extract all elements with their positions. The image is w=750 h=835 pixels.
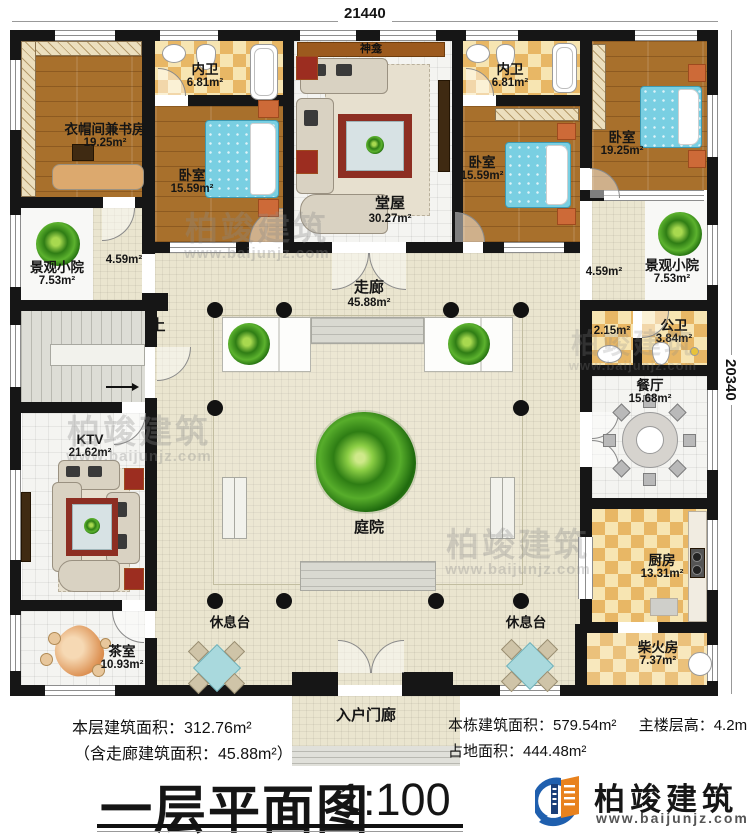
stat-floor-area: 本层建筑面积：312.76m² <box>72 714 252 738</box>
walkway-bridge-south <box>300 561 436 591</box>
window <box>707 390 718 470</box>
label-rest-left: 休息台 <box>190 615 270 630</box>
dimension-right: 20340 <box>722 355 739 405</box>
column <box>207 400 223 416</box>
room-name: 内卫 <box>470 62 550 77</box>
room-name: 卧室 <box>582 130 662 145</box>
label-firewood: 柴火房 7.37m² <box>618 640 698 668</box>
walkway-west <box>222 477 247 539</box>
stat-floor-height: 主楼层高：4.2m <box>639 717 747 734</box>
table-plant <box>366 136 384 154</box>
room-area: 6.81m² <box>165 77 245 90</box>
room-name: 卧室 <box>442 155 522 170</box>
label-bedroom-right: 卧室 19.25m² <box>582 130 662 158</box>
window <box>10 470 21 560</box>
column <box>513 593 529 609</box>
label-yard-right: 景观小院 7.53m² <box>632 258 712 286</box>
wall <box>580 498 718 509</box>
room-name: 卧室 <box>152 168 232 183</box>
room-area: 21.62m² <box>45 447 135 460</box>
wall <box>283 41 294 253</box>
label-wash: 2.15m² <box>584 325 640 338</box>
wall <box>587 622 618 633</box>
stat-corridor-note: （含走廊建筑面积：45.88m²） <box>74 740 293 764</box>
table-plant <box>84 518 100 534</box>
wardrobe <box>21 41 142 56</box>
wall <box>580 376 592 412</box>
bed-pillow <box>678 89 699 145</box>
room-name: 庭院 <box>326 520 412 537</box>
column <box>276 593 292 609</box>
stair-arrow-head <box>132 383 139 391</box>
label-bedroom-mid: 卧室 15.59m² <box>442 155 522 183</box>
window <box>160 30 218 41</box>
room-area: 45.88m² <box>326 297 412 310</box>
label-yard-left: 景观小院 7.53m² <box>17 260 97 288</box>
bed-pillow <box>546 145 568 205</box>
wall <box>145 600 157 611</box>
corner-cabinet <box>296 150 318 174</box>
column <box>513 302 529 318</box>
wall <box>145 407 157 600</box>
sink <box>597 345 622 363</box>
room-area: 15.59m² <box>152 183 232 196</box>
sofa-pillow <box>336 64 352 76</box>
nightstand <box>258 199 279 217</box>
bed-pillow <box>250 123 276 195</box>
column <box>428 593 444 609</box>
wall <box>10 197 103 208</box>
room-name: 餐厅 <box>610 378 690 393</box>
window <box>10 60 21 130</box>
wall <box>575 624 587 696</box>
window <box>707 520 718 590</box>
room-area: 2.15m² <box>584 325 640 338</box>
window <box>55 30 115 41</box>
sofa-chaise <box>58 560 120 592</box>
room-name: 厨房 <box>622 553 702 568</box>
corner-cabinet <box>296 56 318 80</box>
wall <box>283 242 332 253</box>
tv-cabinet <box>21 492 31 562</box>
bathtub <box>552 43 577 93</box>
room-name: 堂屋 <box>340 196 440 213</box>
sliding-door <box>578 537 593 599</box>
dining-chair <box>603 434 616 447</box>
column <box>207 593 223 609</box>
room-area: 19.25m² <box>35 137 175 150</box>
nightstand <box>688 150 706 168</box>
label-rest-right: 休息台 <box>486 615 566 630</box>
label-hall: 堂屋 30.27m² <box>340 196 440 226</box>
room-name: 茶室 <box>82 644 162 659</box>
wardrobe <box>495 108 579 121</box>
tea-stool <box>40 653 53 666</box>
label-bath-left: 内卫 6.81m² <box>165 62 245 90</box>
label-corridor: 走廊 45.88m² <box>326 280 412 310</box>
mop-pool <box>690 347 699 356</box>
room-name: 景观小院 <box>632 258 712 273</box>
wall <box>406 242 452 253</box>
window <box>707 95 718 157</box>
window <box>504 242 564 253</box>
room-area: 19.25m² <box>582 145 662 158</box>
planter-right-plant <box>448 323 490 365</box>
window <box>300 30 356 41</box>
room-area: 30.27m² <box>340 213 440 226</box>
drawing-scale: 1:100 <box>338 774 451 826</box>
label-lobby-left: 4.59m² <box>96 254 152 267</box>
stat-building-area: 本栋建筑面积：579.54m² <box>448 717 616 734</box>
label-bedroom-left: 卧室 15.59m² <box>152 168 232 196</box>
stat-building-row: 本栋建筑面积：579.54m² 主楼层高：4.2m <box>448 714 747 735</box>
sofa-pillow <box>88 466 102 477</box>
label-stairs-up: 上 <box>146 318 170 335</box>
dining-chair <box>643 473 656 486</box>
label-porch: 入户门廊 <box>306 708 426 725</box>
sofa-pillow <box>304 110 318 126</box>
label-tea: 茶室 10.93m² <box>82 644 162 672</box>
room-area: 15.68m² <box>610 393 690 406</box>
wall <box>580 509 592 537</box>
floor-plan: 21440 20340 <box>0 0 750 835</box>
wall <box>142 208 155 254</box>
room-area: 7.53m² <box>17 275 97 288</box>
title-underline <box>97 824 463 828</box>
room-name: 内卫 <box>165 62 245 77</box>
room-name: 休息台 <box>486 615 566 630</box>
room-name: 衣帽间兼书房 <box>35 122 175 137</box>
wall <box>10 30 718 41</box>
label-public-bath: 公卫 3.84m² <box>638 318 710 346</box>
sink <box>466 44 490 63</box>
room-area: 4.59m² <box>96 254 152 267</box>
bathtub <box>250 44 278 100</box>
title-underline-thin <box>97 831 463 832</box>
room-area: 7.37m² <box>618 655 698 668</box>
window <box>170 242 236 253</box>
nightstand <box>557 123 576 140</box>
shrine-label: 神龛 <box>297 43 445 55</box>
room-area: 3.84m² <box>638 333 710 346</box>
room-area: 13.31m² <box>622 568 702 581</box>
wall <box>402 672 453 696</box>
wall <box>10 300 168 311</box>
tea-stool <box>48 632 61 645</box>
room-name: 入户门廊 <box>306 708 426 725</box>
nightstand <box>557 208 576 225</box>
stair-arrow-line <box>106 386 132 388</box>
window <box>466 30 518 41</box>
shrine-text: 神龛 <box>297 43 445 55</box>
porch-steps <box>292 746 460 766</box>
column <box>443 302 459 318</box>
logo-icon <box>535 770 589 828</box>
wall <box>10 402 122 413</box>
window <box>10 325 21 387</box>
label-bath-right: 内卫 6.81m² <box>470 62 550 90</box>
stairs-up-text: 上 <box>146 318 170 335</box>
room-name: 柴火房 <box>618 640 698 655</box>
wall <box>10 600 122 611</box>
walkway-bridge-north <box>311 317 424 344</box>
room-name: KTV <box>45 432 135 447</box>
walkway-east <box>490 477 515 539</box>
wall <box>496 95 580 106</box>
room-area: 6.81m² <box>470 77 550 90</box>
nightstand <box>258 100 279 118</box>
sofa-pillow <box>66 466 80 477</box>
sink <box>162 44 186 63</box>
logo-icon-svg <box>535 770 589 828</box>
room-name: 走廊 <box>326 280 412 297</box>
stair-rail <box>50 344 145 366</box>
label-ktv: KTV 21.62m² <box>45 432 135 460</box>
label-cloak-study: 衣帽间兼书房 19.25m² <box>35 122 175 150</box>
room-area: 10.93m² <box>82 659 162 672</box>
room-area: 15.59m² <box>442 170 522 183</box>
logo-url: www.baijunjz.com <box>596 810 749 826</box>
yard-right-plant <box>658 212 702 256</box>
window <box>635 30 697 41</box>
room-name: 公卫 <box>638 318 710 333</box>
label-lobby-right: 4.59m² <box>576 266 632 279</box>
corner-cabinet <box>124 468 144 490</box>
wall <box>580 311 592 365</box>
label-courtyard: 庭院 <box>326 520 412 537</box>
nightstand <box>688 64 706 82</box>
window <box>45 685 115 696</box>
dining-table-center <box>636 426 664 454</box>
wall <box>580 365 718 376</box>
corner-cabinet <box>124 568 144 590</box>
wall <box>658 622 718 633</box>
room-name: 景观小院 <box>17 260 97 275</box>
room-area: 7.53m² <box>632 273 712 286</box>
window <box>380 30 436 41</box>
room-name: 休息台 <box>190 615 270 630</box>
label-dining: 餐厅 15.68m² <box>610 378 690 406</box>
dimension-top: 21440 <box>338 5 392 22</box>
dining-chair <box>683 434 696 447</box>
kitchen-sink <box>650 598 678 616</box>
wardrobe <box>21 41 36 197</box>
column <box>207 302 223 318</box>
wall <box>580 598 592 624</box>
window <box>10 615 21 671</box>
planter-left-plant <box>228 323 270 365</box>
stat-land-area: 占地面积：444.48m² <box>448 740 586 761</box>
desk <box>52 164 144 190</box>
room-area: 4.59m² <box>576 266 632 279</box>
column <box>276 302 292 318</box>
wardrobe <box>592 44 606 130</box>
wall <box>292 672 338 696</box>
courtyard-tree <box>316 412 416 512</box>
wall <box>580 300 718 311</box>
column <box>513 400 529 416</box>
label-kitchen: 厨房 13.31m² <box>622 553 702 581</box>
wall <box>135 197 155 208</box>
